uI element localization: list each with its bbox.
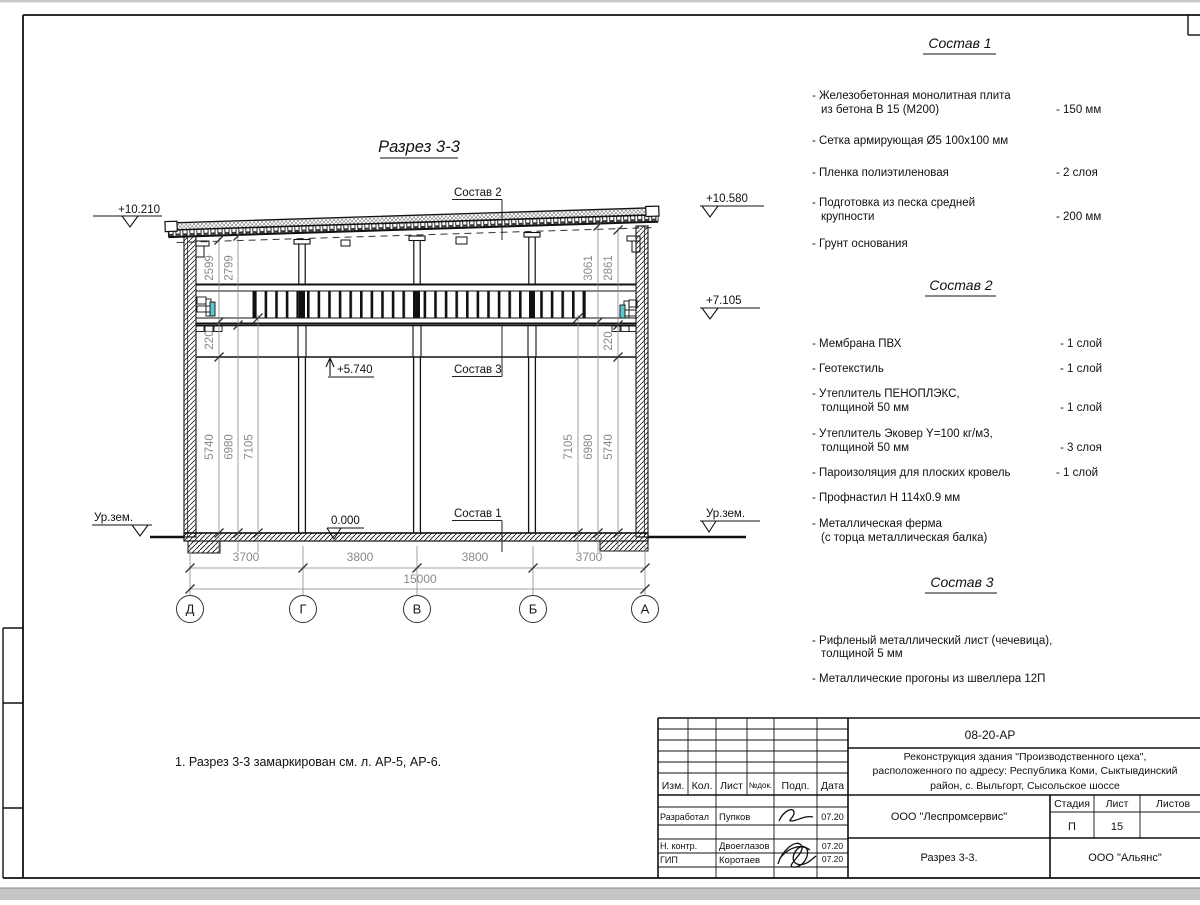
elev-roof-left: +10.210 (118, 204, 160, 216)
dim-total: 15000 (403, 572, 437, 586)
elev-roof-right: +10.580 (706, 193, 748, 205)
tb-stage: П (1068, 821, 1076, 833)
tb-sheet-no: 15 (1111, 821, 1123, 833)
deck-clip (456, 237, 467, 244)
elev-truss: +7.105 (706, 295, 742, 307)
dim-2799: 2799 (224, 255, 236, 281)
comp1-value: - 2 слоя (1056, 167, 1098, 179)
leader-sostav-3: Состав 3 (454, 364, 502, 376)
leader-sostav-2: Состав 2 (454, 187, 502, 199)
title-block: Изм. Кол. Лист №док. Подп. Дата Разработ… (658, 718, 1200, 878)
tb-project-2: расположенного по адресу: Республика Ком… (873, 765, 1178, 777)
tb-date-1: 07.20 (821, 812, 844, 822)
comp1-item: - Подготовка из песка средней (812, 197, 975, 209)
truss (196, 285, 636, 324)
axis-b: Б (529, 602, 538, 617)
comp1-item: - Пленка полиэтиленовая (812, 167, 949, 179)
tb-sheets-label: Листов (1156, 798, 1191, 810)
mezzanine-floor (196, 326, 636, 358)
wall-left (184, 236, 196, 537)
dim-span-3: 3800 (462, 550, 489, 564)
dim-3061: 3061 (583, 255, 595, 281)
comp3-title: Состав 3 (930, 574, 993, 590)
tb-col-data: Дата (821, 780, 844, 792)
tb-role-2: Н. контр. (660, 841, 697, 851)
dim-span-1: 3700 (233, 550, 260, 564)
comp1-title: Состав 1 (928, 35, 991, 51)
tb-role-3: ГИП (660, 855, 678, 865)
tb-date-3: 07.20 (822, 854, 844, 864)
wall-right (636, 226, 648, 537)
dim-7105-l: 7105 (244, 434, 256, 460)
dim-5740-r: 5740 (603, 434, 615, 460)
comp2-value: - 1 слой (1060, 338, 1102, 350)
dim-5740-l: 5740 (204, 434, 216, 460)
comp1-value: - 150 мм (1056, 104, 1101, 116)
footing-left (188, 541, 220, 553)
tb-org: ООО "Леспромсервис" (891, 811, 1007, 823)
composition-lists: Состав 1 - Железобетонная монолитная пли… (812, 35, 1102, 685)
sheet-note: 1. Разрез 3-3 замаркирован см. л. АР-5, … (175, 755, 441, 769)
roof-posts (294, 233, 540, 285)
tb-sheet-label: Лист (1106, 798, 1129, 810)
comp1-item: - Грунт основания (812, 238, 908, 250)
comp2-item: толщиной 50 мм (821, 402, 909, 414)
section-view: Разрез 3-3 (92, 138, 764, 623)
comp1-item: - Сетка армирующая Ø5 100x100 мм (812, 135, 1008, 147)
tb-col-izm: Изм. (662, 780, 685, 792)
ground-label-left: Ур.зем. (94, 512, 133, 524)
leader-sostav-1: Состав 1 (454, 508, 502, 520)
comp2-item: - Пароизоляция для плоских кровель (812, 467, 1011, 479)
dim-7105-r: 7105 (563, 434, 575, 460)
section-title: Разрез 3-3 (378, 138, 461, 156)
tb-col-podp: Подп. (782, 780, 810, 792)
comp2-value: - 1 слой (1060, 363, 1102, 375)
comp2-item: - Утеплитель Эковер Y=100 кг/м3, (812, 428, 993, 440)
comp2-item: - Мембрана ПВХ (812, 338, 902, 350)
comp1-item: из бетона В 15 (М200) (821, 104, 939, 116)
wall-head-brackets (196, 236, 640, 257)
tb-role-1: Разработал (660, 812, 709, 822)
tb-project-3: район, с. Выльгорт, Сысольское шоссе (930, 780, 1120, 792)
axis-a: А (641, 602, 650, 617)
dim-6980-r: 6980 (583, 434, 595, 460)
tb-stage-label: Стадия (1054, 798, 1090, 810)
corner-box (1188, 15, 1200, 35)
comp1-item: - Железобетонная монолитная плита (812, 90, 1011, 102)
comp2-item: - Металлическая ферма (812, 518, 943, 530)
ground-label-right: Ур.зем. (706, 508, 745, 520)
signature-1 (779, 810, 813, 821)
tb-contractor: ООО "Альянс" (1088, 852, 1162, 864)
roof-assembly (165, 206, 659, 243)
eave-cap-right (646, 206, 659, 216)
comp3-item: - Металлические прогоны из швеллера 12П (812, 673, 1045, 685)
dim-2861: 2861 (603, 255, 615, 281)
comp2-item: - Профнастил Н 114x0.9 мм (812, 492, 960, 504)
comp1-value: - 200 мм (1056, 211, 1101, 223)
tb-name-3: Коротаев (719, 855, 760, 866)
tb-drawing-name: Разрез 3-3. (920, 852, 977, 864)
elev-floor: 0.000 (331, 515, 360, 527)
dim-span-4: 3700 (576, 550, 603, 564)
comp2-item: - Утеплитель ПЕНОПЛЭКС, (812, 388, 960, 400)
comp2-value: - 1 слой (1056, 467, 1098, 479)
axis-g: Г (299, 602, 306, 617)
deck-clip (341, 240, 350, 246)
comp1-item: крупности (821, 211, 874, 223)
comp3-item: толщиной 5 мм (821, 648, 903, 660)
comp2-value: - 3 слоя (1060, 442, 1102, 454)
tb-name-1: Пупков (719, 812, 750, 823)
drawing-sheet: Разрез 3-3 (0, 0, 1200, 900)
comp2-item: толщиной 50 мм (821, 442, 909, 454)
dim-220-l: 220 (204, 330, 216, 349)
footing-right (600, 541, 648, 551)
dim-6980-l: 6980 (224, 434, 236, 460)
truss-wall-bracket-right (620, 300, 637, 318)
tb-col-list: Лист (720, 780, 743, 792)
columns (299, 357, 536, 533)
dim-220-r: 220 (603, 331, 615, 350)
dim-2599: 2599 (204, 255, 216, 281)
dim-span-2: 3800 (347, 550, 374, 564)
comp2-title: Состав 2 (929, 277, 992, 293)
tb-project-1: Реконструкция здания "Производственного … (904, 751, 1147, 763)
margin-boxes (3, 628, 23, 878)
eave-cap-left (165, 221, 177, 231)
comp3-item: - Рифленый металлический лист (чечевица)… (812, 635, 1052, 647)
tb-name-2: Двоеглазов (719, 841, 770, 852)
axis-d: Д (186, 602, 195, 617)
tb-doc-number: 08-20-АР (965, 728, 1016, 742)
signature-2 (778, 843, 816, 867)
comp2-item: (с торца металлическая балка) (821, 532, 988, 544)
tb-col-ndok: №док. (749, 781, 772, 790)
comp2-value: - 1 слой (1060, 402, 1102, 414)
tb-date-2: 07.20 (822, 841, 844, 851)
comp2-item: - Геотекстиль (812, 363, 884, 375)
truss-wall-bracket-left (197, 297, 215, 316)
screen-edge-bottom (0, 888, 1200, 900)
axis-v: В (413, 602, 422, 617)
screen-edge-top (0, 0, 1200, 3)
tb-col-kol: Кол. (692, 780, 713, 792)
elev-mezzanine: +5.740 (337, 364, 373, 376)
axis-bubbles: Д Г В Б А (177, 596, 659, 623)
